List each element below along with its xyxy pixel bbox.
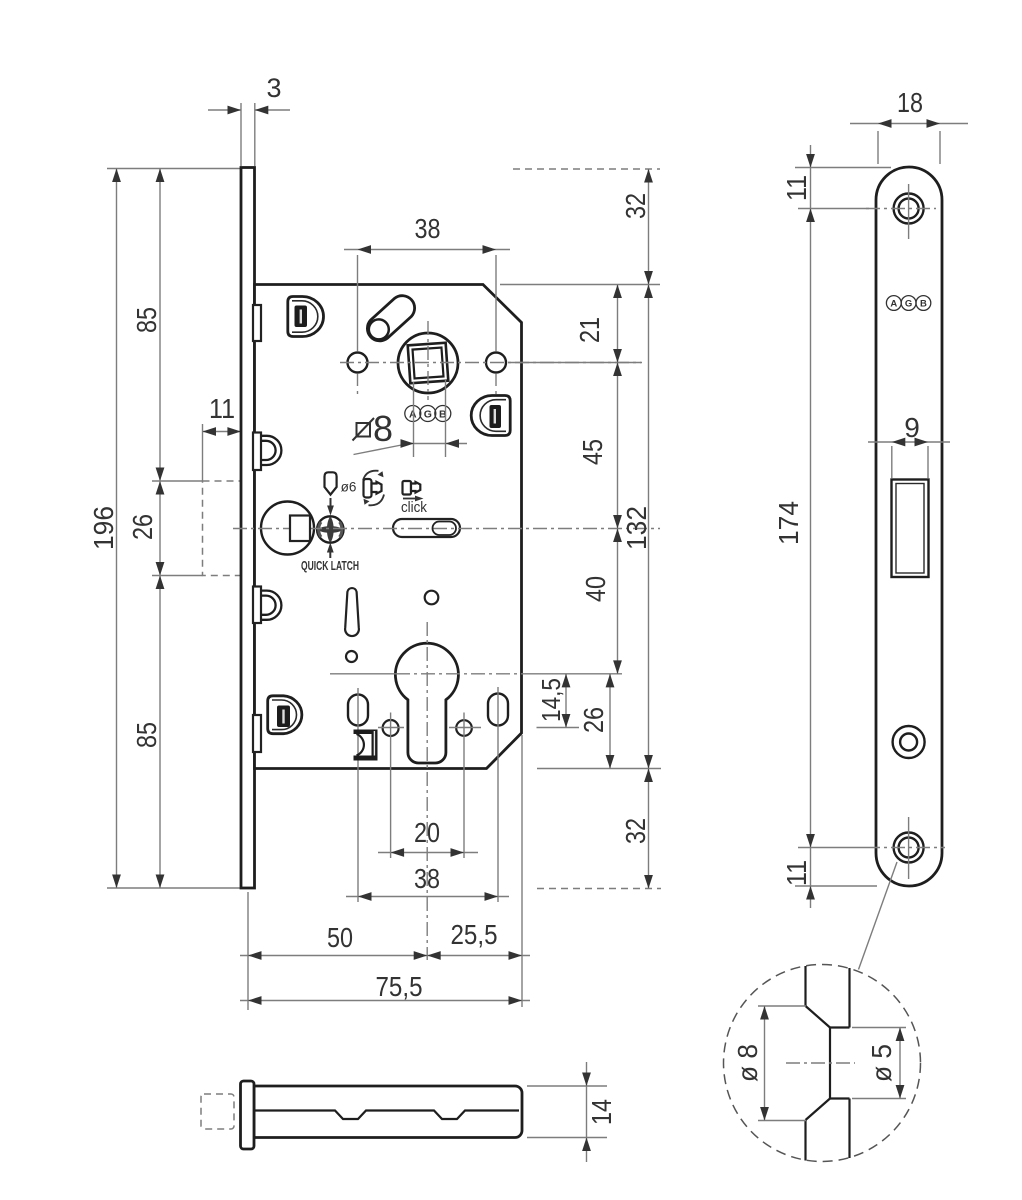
- svg-text:ø 5: ø 5: [866, 1044, 897, 1082]
- svg-text:QUICK LATCH: QUICK LATCH: [301, 559, 359, 573]
- svg-text:75,5: 75,5: [376, 971, 423, 1002]
- svg-text:85: 85: [131, 722, 162, 748]
- svg-text:38: 38: [414, 863, 440, 894]
- svg-text:14,5: 14,5: [536, 678, 566, 722]
- svg-text:32: 32: [620, 193, 651, 219]
- svg-text:38: 38: [415, 213, 441, 244]
- svg-text:18: 18: [897, 87, 923, 118]
- svg-text:85: 85: [131, 307, 162, 333]
- svg-text:45: 45: [577, 439, 608, 465]
- svg-text:32: 32: [620, 818, 651, 844]
- svg-text:196: 196: [88, 506, 119, 550]
- svg-text:14: 14: [586, 1099, 617, 1125]
- svg-text:25,5: 25,5: [451, 919, 498, 950]
- svg-text:132: 132: [621, 506, 652, 550]
- svg-text:9: 9: [904, 412, 920, 443]
- svg-text:3: 3: [266, 73, 281, 103]
- svg-text:11: 11: [781, 175, 812, 201]
- svg-text:A: A: [890, 299, 897, 310]
- svg-text:8: 8: [373, 408, 393, 449]
- svg-text:ø 8: ø 8: [732, 1044, 763, 1082]
- svg-text:20: 20: [414, 817, 440, 848]
- svg-text:26: 26: [578, 707, 609, 733]
- svg-text:click: click: [401, 499, 427, 516]
- svg-text:26: 26: [127, 514, 158, 540]
- svg-text:40: 40: [580, 576, 611, 602]
- svg-text:ø6: ø6: [341, 480, 357, 495]
- svg-text:21: 21: [574, 317, 605, 343]
- svg-text:174: 174: [773, 501, 804, 545]
- svg-text:50: 50: [327, 922, 353, 953]
- svg-text:G: G: [905, 299, 912, 310]
- svg-text:B: B: [920, 299, 927, 310]
- svg-text:11: 11: [781, 860, 812, 886]
- svg-text:G: G: [424, 409, 432, 421]
- svg-text:11: 11: [209, 393, 235, 424]
